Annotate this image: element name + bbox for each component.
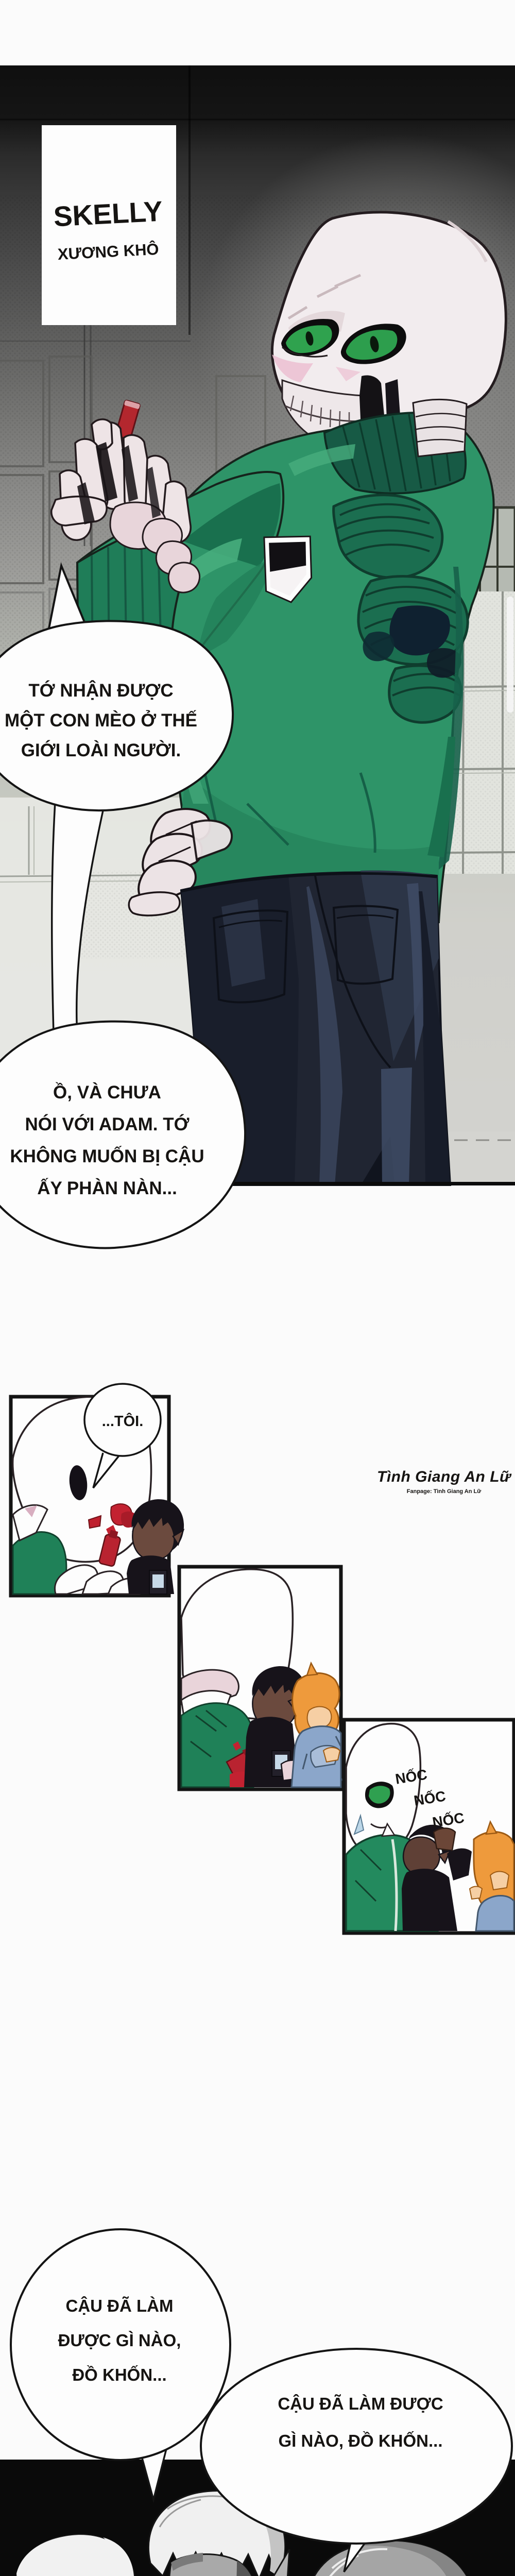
- svg-text:ĐƯỢC GÌ NÀO,: ĐƯỢC GÌ NÀO,: [58, 2331, 181, 2350]
- svg-text:ẤY PHÀN NÀN...: ẤY PHÀN NÀN...: [37, 1178, 177, 1198]
- svg-text:NÓI VỚI ADAM. TỚ: NÓI VỚI ADAM. TỚ: [25, 1114, 190, 1134]
- svg-text:ĐỒ KHỐN...: ĐỒ KHỐN...: [72, 2365, 166, 2384]
- svg-text:GÌ NÀO, ĐỒ KHỐN...: GÌ NÀO, ĐỒ KHỐN...: [278, 2431, 442, 2450]
- svg-text:CẬU ĐÃ LÀM: CẬU ĐÃ LÀM: [66, 2296, 174, 2315]
- svg-text:GIỚI LOÀI NGƯỜI.: GIỚI LOÀI NGƯỜI.: [21, 740, 181, 760]
- svg-text:...TÔI.: ...TÔI.: [102, 1412, 144, 1430]
- svg-text:CẬU ĐÃ LÀM ĐƯỢC: CẬU ĐÃ LÀM ĐƯỢC: [278, 2394, 443, 2413]
- svg-text:MỘT CON MÈO Ở THẾ: MỘT CON MÈO Ở THẾ: [5, 710, 197, 731]
- svg-text:KHÔNG MUỐN BỊ CẬU: KHÔNG MUỐN BỊ CẬU: [10, 1146, 204, 1166]
- svg-text:Fanpage: Tình Giang An Lữ: Fanpage: Tình Giang An Lữ: [407, 1488, 481, 1495]
- svg-text:SKELLY: SKELLY: [53, 195, 163, 233]
- svg-text:Tình Giang An Lữ: Tình Giang An Lữ: [377, 1468, 512, 1485]
- svg-text:TỚ NHẬN ĐƯỢC: TỚ NHẬN ĐƯỢC: [28, 680, 173, 701]
- svg-text:Ồ, VÀ CHƯA: Ồ, VÀ CHƯA: [53, 1082, 161, 1103]
